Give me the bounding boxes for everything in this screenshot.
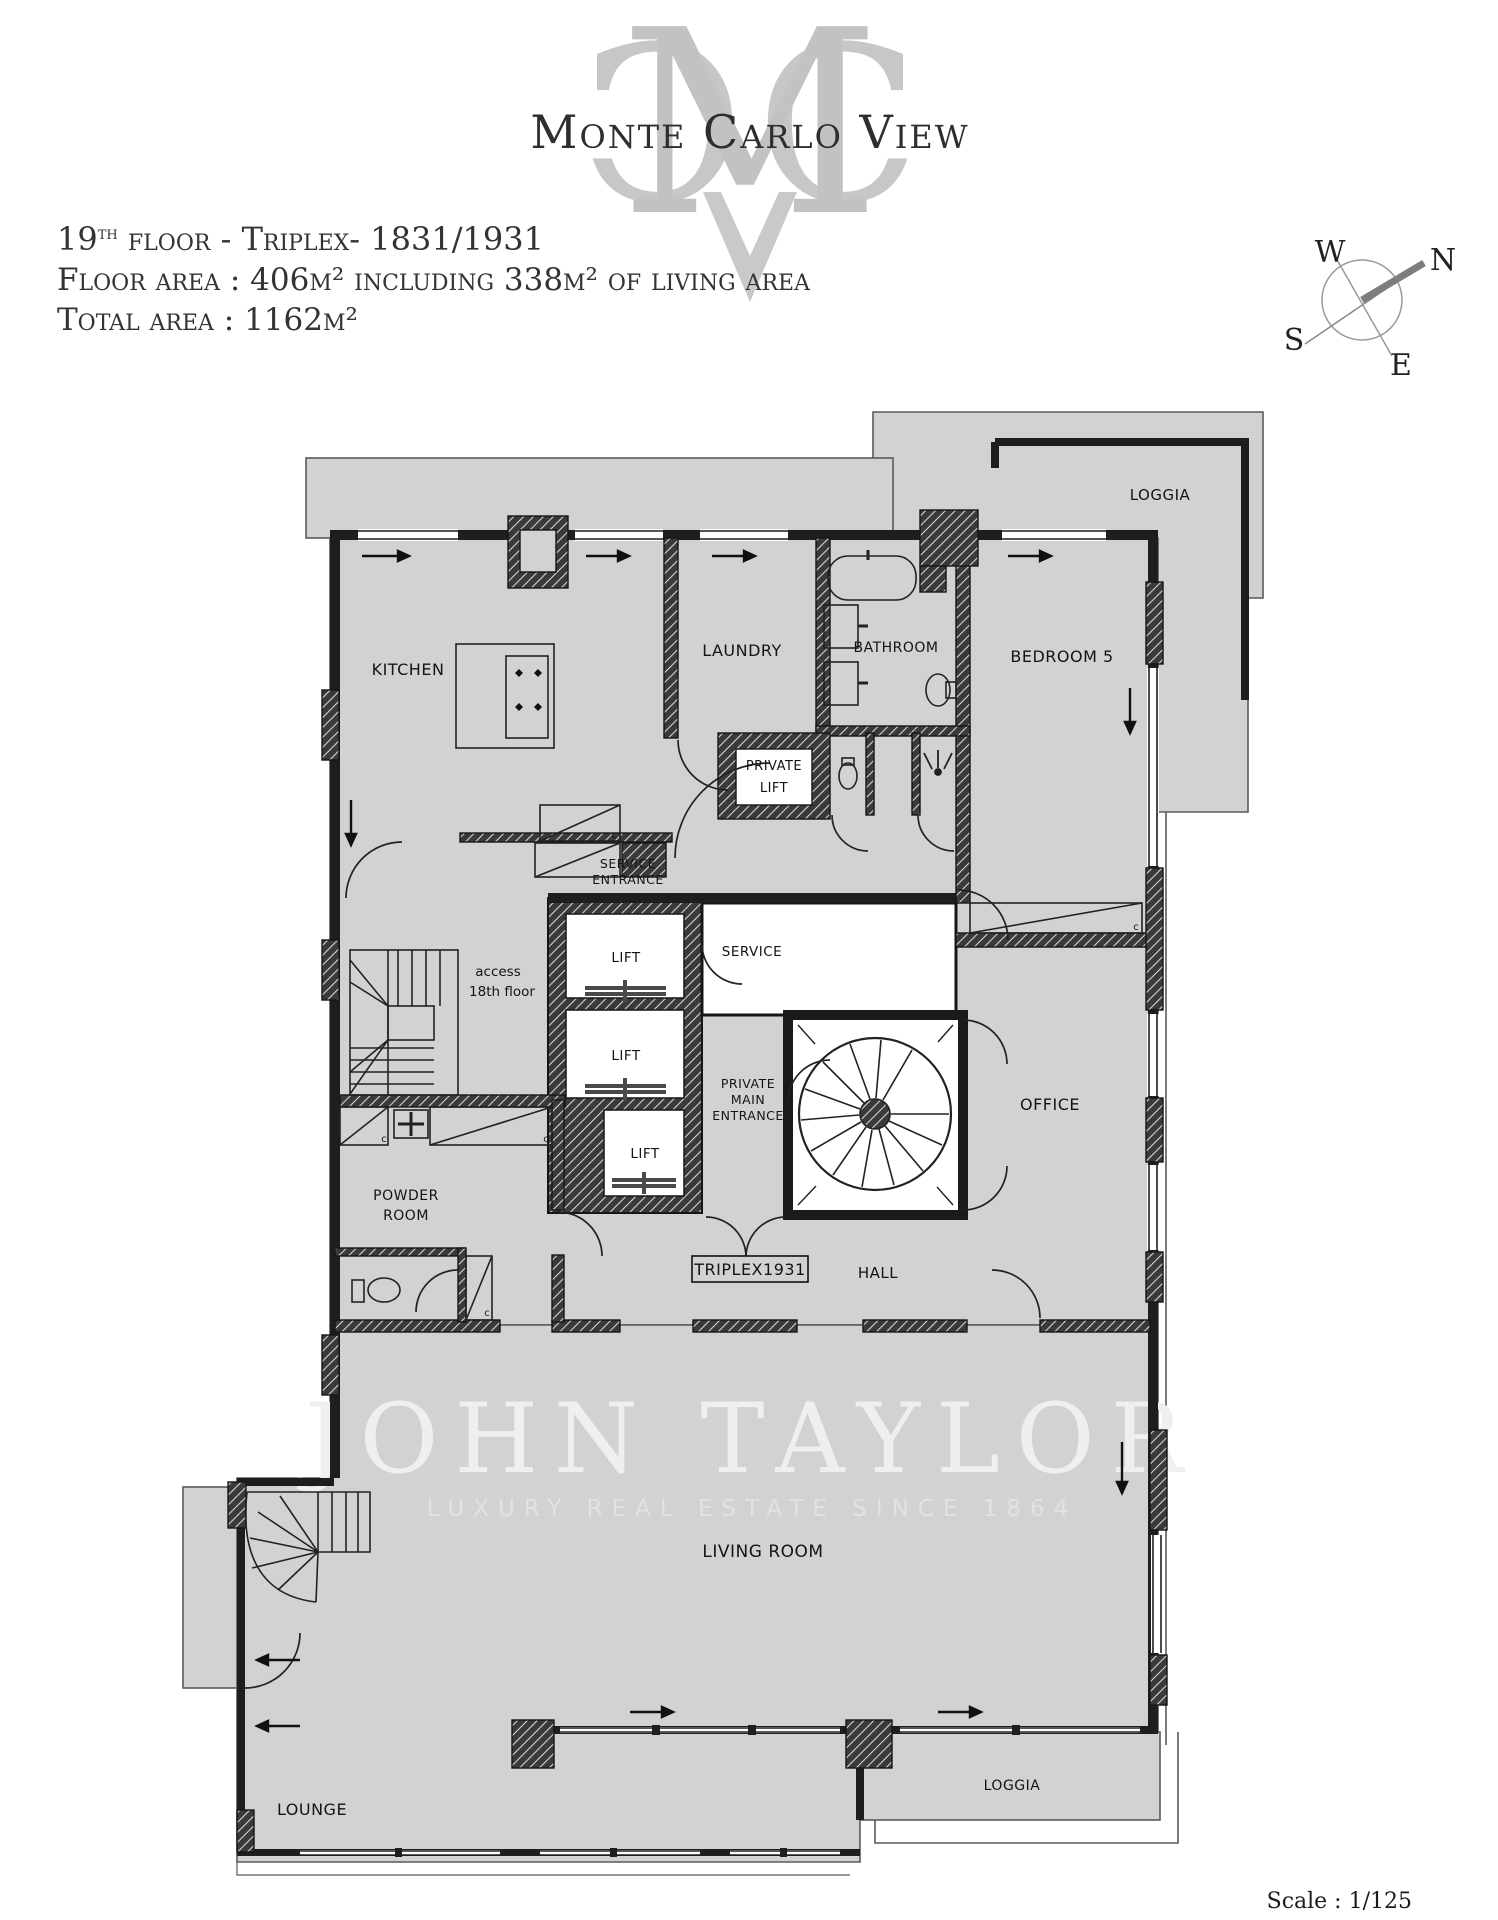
label-bathroom: BATHROOM bbox=[853, 640, 938, 656]
label-pme-3: ENTRANCE bbox=[712, 1108, 784, 1123]
closet-marker-3: c bbox=[381, 1134, 387, 1145]
private-lift-inner bbox=[736, 749, 812, 805]
watermark: JOHN TAYLOR LUXURY REAL ESTATE SINCE 186… bbox=[296, 1383, 1199, 1522]
pillar-loggia-b1 bbox=[512, 1720, 554, 1768]
label-pme-1: PRIVATE bbox=[721, 1076, 775, 1091]
label-loggia-bottom: LOGGIA bbox=[984, 1778, 1041, 1794]
logo: C C M Monte Carlo View bbox=[530, 0, 969, 302]
closet-marker-5: c bbox=[484, 1308, 490, 1319]
compass-west: W bbox=[1315, 235, 1346, 270]
wall-bathroom-bottom bbox=[816, 726, 970, 736]
compass-north-needle bbox=[1362, 263, 1424, 300]
closet-marker-4: c bbox=[543, 1134, 549, 1145]
label-lounge: LOUNGE bbox=[277, 1800, 347, 1819]
label-office: OFFICE bbox=[1020, 1095, 1080, 1114]
pillar-left-1 bbox=[322, 690, 339, 760]
pillar-loggia-b2 bbox=[846, 1720, 892, 1768]
compass-south: S bbox=[1284, 323, 1305, 358]
label-loggia-top: LOGGIA bbox=[1130, 486, 1191, 504]
top-band-floor bbox=[306, 458, 893, 538]
wc-right-wall bbox=[458, 1248, 466, 1322]
pillar-right-4 bbox=[1146, 1252, 1163, 1302]
label-private-lift-1: PRIVATE bbox=[746, 759, 802, 774]
closet-marker-1: c bbox=[611, 830, 617, 841]
label-hall: HALL bbox=[858, 1264, 898, 1282]
scale-label: Scale : 1/125 bbox=[1267, 1889, 1412, 1914]
logo-title: Monte Carlo View bbox=[530, 105, 969, 159]
compass-north: N bbox=[1430, 243, 1456, 278]
hall-wall-stub-1 bbox=[335, 1320, 500, 1332]
floor-areas bbox=[183, 412, 1263, 1862]
label-lift-2: LIFT bbox=[611, 1048, 641, 1064]
watermark-tagline: LUXURY REAL ESTATE SINCE 1864 bbox=[427, 1496, 1078, 1522]
loggia-bottom-floor bbox=[860, 1732, 1160, 1820]
label-service-entrance-1: SERVICE bbox=[600, 856, 656, 871]
header-line2: Floor area : 406m² including 338m² of li… bbox=[57, 262, 811, 298]
pillar-right-5 bbox=[1150, 1430, 1167, 1530]
hall-wall-stub-3 bbox=[693, 1320, 797, 1332]
pillar-left-3 bbox=[322, 1335, 339, 1395]
wc-top-wall bbox=[335, 1248, 465, 1256]
pillar-right-3 bbox=[1146, 1098, 1163, 1162]
label-bedroom5: BEDROOM 5 bbox=[1010, 647, 1113, 666]
label-private-lift-2: LIFT bbox=[760, 781, 788, 796]
label-access-2: 18th floor bbox=[469, 984, 535, 1000]
compass-rose: W N S E bbox=[1284, 235, 1456, 383]
label-service-entrance-2: ENTRANCE bbox=[592, 872, 664, 887]
label-access-1: access bbox=[475, 964, 521, 980]
wall-bedroom-bottom bbox=[956, 933, 1158, 947]
closet-marker-2: c bbox=[1133, 922, 1139, 933]
pillar-left-2 bbox=[322, 940, 339, 1000]
hall-wall-stub-5 bbox=[1040, 1320, 1150, 1332]
floorplan-page: C C M Monte Carlo View 19th floor - Trip… bbox=[0, 0, 1498, 1920]
pillar-lounge-corner bbox=[237, 1810, 254, 1852]
powder-right-wall bbox=[552, 1100, 564, 1210]
pillar-right-2 bbox=[1146, 868, 1163, 1010]
watermark-name: JOHN TAYLOR bbox=[296, 1383, 1199, 1495]
wall-left-step bbox=[237, 1478, 334, 1486]
label-kitchen: KITCHEN bbox=[372, 660, 445, 679]
label-lift-1: LIFT bbox=[611, 950, 641, 966]
wall-lounge-left bbox=[237, 1478, 245, 1855]
header-line1: 19th floor - Triplex- 1831/1931 bbox=[57, 220, 544, 258]
chimney-inner bbox=[520, 530, 556, 572]
label-powder-1: POWDER bbox=[373, 1188, 439, 1204]
header-line3: Total area : 1162m² bbox=[57, 302, 358, 338]
lounge-offset-outline bbox=[237, 1862, 850, 1875]
pillar-bathroom-top bbox=[920, 510, 978, 566]
wall-kitchen-laundry bbox=[664, 538, 678, 738]
label-triplex: TRIPLEX1931 bbox=[693, 1260, 805, 1279]
label-living-room: LIVING ROOM bbox=[702, 1542, 823, 1562]
pillar-right-6 bbox=[1150, 1655, 1167, 1705]
powder-top-wall bbox=[340, 1095, 565, 1107]
label-laundry: LAUNDRY bbox=[702, 641, 782, 660]
wall-bathroom-bedroom bbox=[956, 538, 970, 903]
label-service: SERVICE bbox=[722, 944, 782, 960]
pillar-right-1 bbox=[1146, 582, 1163, 664]
wall-service-top bbox=[548, 893, 962, 903]
label-lift-3: LIFT bbox=[630, 1146, 660, 1162]
compass-east: E bbox=[1390, 348, 1412, 383]
triplex-tag: TRIPLEX1931 bbox=[692, 1256, 808, 1282]
label-powder-2: ROOM bbox=[383, 1208, 429, 1224]
pillar-balcony bbox=[228, 1482, 246, 1528]
hall-wall-stub-4 bbox=[863, 1320, 967, 1332]
label-pme-2: MAIN bbox=[731, 1092, 765, 1107]
